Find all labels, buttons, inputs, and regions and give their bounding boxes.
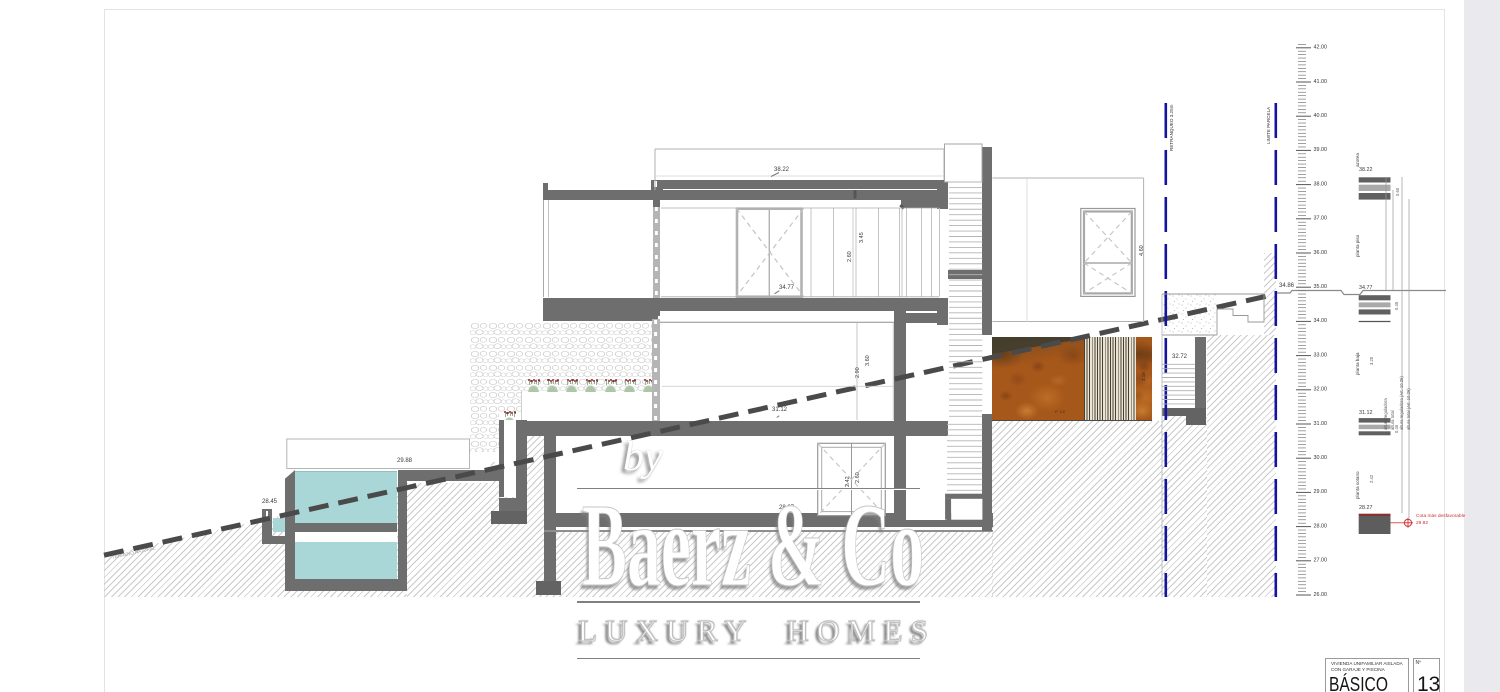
svg-text:37.00: 37.00	[1314, 216, 1328, 222]
svg-text:35.00: 35.00	[1314, 284, 1328, 290]
svg-text:38.00: 38.00	[1314, 181, 1328, 187]
svg-text:33.00: 33.00	[1314, 352, 1328, 358]
svg-text:32.00: 32.00	[1314, 387, 1328, 393]
svg-text:31.00: 31.00	[1314, 421, 1328, 427]
svg-text:40.00: 40.00	[1314, 113, 1328, 119]
svg-text:42.00: 42.00	[1314, 45, 1328, 51]
svg-text:41.00: 41.00	[1314, 79, 1328, 85]
svg-text:39.00: 39.00	[1314, 147, 1328, 153]
svg-text:36.00: 36.00	[1314, 250, 1328, 256]
svg-text:34.00: 34.00	[1314, 318, 1328, 324]
svg-text:30.00: 30.00	[1314, 455, 1328, 461]
